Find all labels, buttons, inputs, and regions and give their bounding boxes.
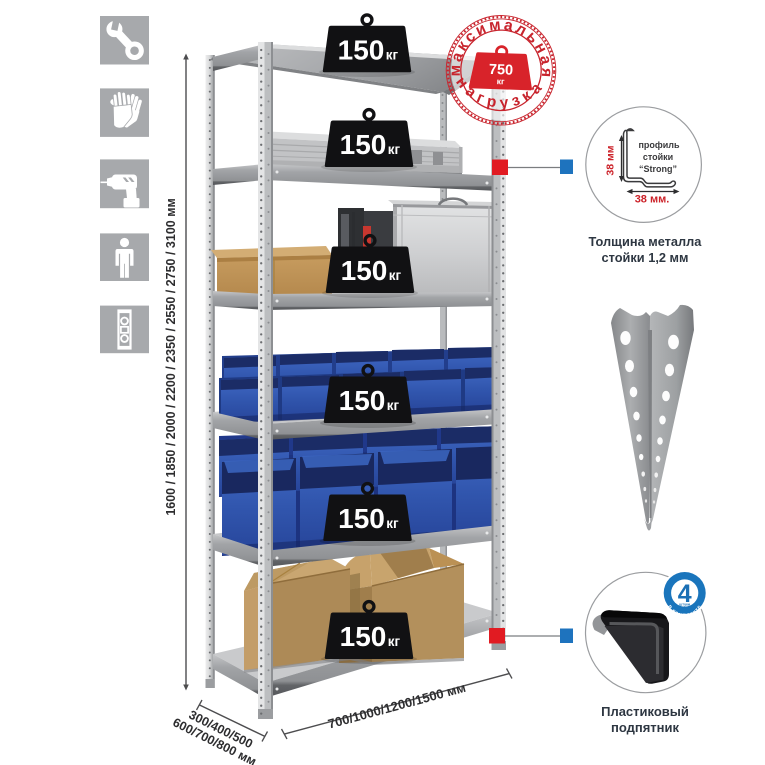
svg-text:“Strong”: “Strong” xyxy=(639,164,677,174)
svg-text:штуки: штуки xyxy=(679,603,690,607)
svg-text:кг: кг xyxy=(496,76,505,86)
svg-text:38 мм.: 38 мм. xyxy=(635,194,670,206)
svg-text:стойки: стойки xyxy=(643,152,673,162)
svg-text:подпятник: подпятник xyxy=(611,720,680,735)
svg-text:стойки 1,2 мм: стойки 1,2 мм xyxy=(601,250,688,265)
svg-text:1600 / 1850 / 2000 / 2200 / 23: 1600 / 1850 / 2000 / 2200 / 2350 / 2550 … xyxy=(164,198,178,515)
svg-text:38 мм: 38 мм xyxy=(605,145,617,175)
svg-text:700/1000/1200/1500 мм: 700/1000/1200/1500 мм xyxy=(326,680,467,732)
svg-text:Толщина металла: Толщина металла xyxy=(589,234,703,249)
svg-text:профиль: профиль xyxy=(638,140,680,150)
svg-text:Пластиковый: Пластиковый xyxy=(601,704,689,719)
